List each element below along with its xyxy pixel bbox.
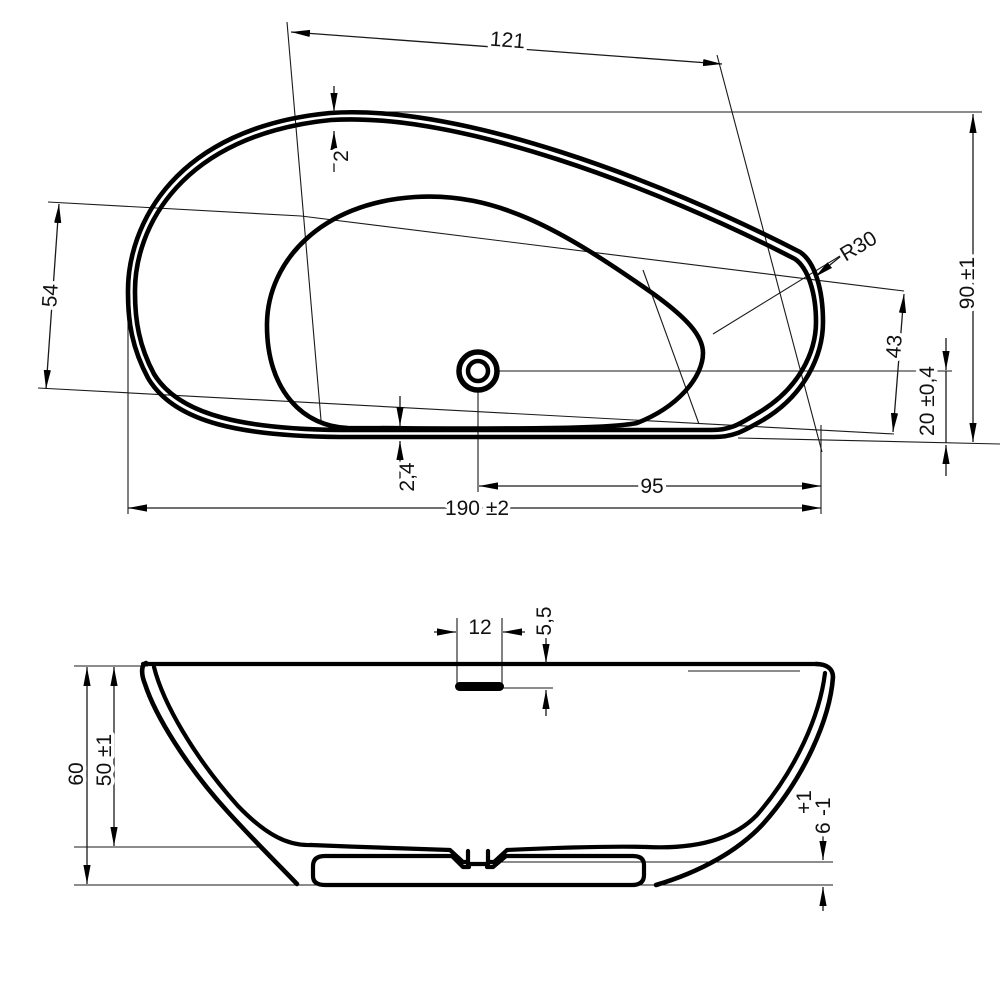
dim-label-50: 50 ±1 <box>93 734 116 786</box>
hull-outer-right <box>656 664 833 885</box>
dim-label-6-plus: +1 <box>793 790 816 814</box>
dim-label-95: 95 <box>640 475 663 498</box>
dim-label-12: 12 <box>468 616 491 639</box>
dim-label-6-group: 6 -1 +1 <box>793 790 835 834</box>
plan-outline <box>128 112 823 437</box>
radius-leader-line <box>713 251 848 334</box>
drain-circle-inner <box>468 361 488 381</box>
dim-label-55: 5,5 <box>533 606 556 635</box>
elevation-dimensions: 60 50 ±1 12 5,5 6 -1 +1 <box>65 606 835 911</box>
dim-label-2: 2 <box>330 150 353 162</box>
ext-line-rim-bottom <box>738 438 1000 444</box>
dim-label-90: 90 ±1 <box>956 257 979 309</box>
dim-label-43: 43 <box>882 334 907 359</box>
drawing-sheet: 121 2 54 R30 90 ±1 43 20 ±0,4 95 2,4 190… <box>0 0 1000 1000</box>
ext-line-121-left <box>287 22 321 420</box>
basin-box-top-line <box>301 216 904 291</box>
dim-label-6-value: 6 <box>812 822 835 834</box>
base-skirt-outline <box>313 856 644 885</box>
hull-inner-right <box>647 673 825 847</box>
dim-label-20: 20 ±0,4 <box>916 366 939 436</box>
plan-dimensions: 121 2 54 R30 90 ±1 43 20 ±0,4 95 2,4 190… <box>38 28 979 520</box>
elevation-construction-lines <box>74 618 833 885</box>
waste-outlet-stem <box>468 851 488 864</box>
technical-drawing-bathtub: 121 2 54 R30 90 ±1 43 20 ±0,4 95 2,4 190… <box>0 0 1000 1000</box>
ext-line-54-top <box>48 202 301 216</box>
dim-label-24: 2,4 <box>396 462 419 492</box>
plan-construction-lines <box>38 22 1000 514</box>
dim-label-54: 54 <box>38 283 63 308</box>
elevation-view: 60 50 ±1 12 5,5 6 -1 +1 <box>65 606 835 911</box>
dim-label-r30: R30 <box>836 227 881 267</box>
drain-circle-outer <box>459 352 497 390</box>
shell-underside-left <box>311 845 468 862</box>
ext-line-121-right <box>717 55 822 452</box>
dim-label-121: 121 <box>489 28 526 54</box>
basin-outline <box>267 197 703 429</box>
dim-line-43 <box>893 294 904 432</box>
overflow-slot <box>455 682 504 691</box>
rim-outline-inner <box>135 119 816 430</box>
dim-label-190: 190 ±2 <box>445 497 509 520</box>
elevation-outline <box>142 663 833 885</box>
plan-view: 121 2 54 R30 90 ±1 43 20 ±0,4 95 2,4 190… <box>38 22 1000 520</box>
dim-label-60: 60 <box>65 762 88 785</box>
